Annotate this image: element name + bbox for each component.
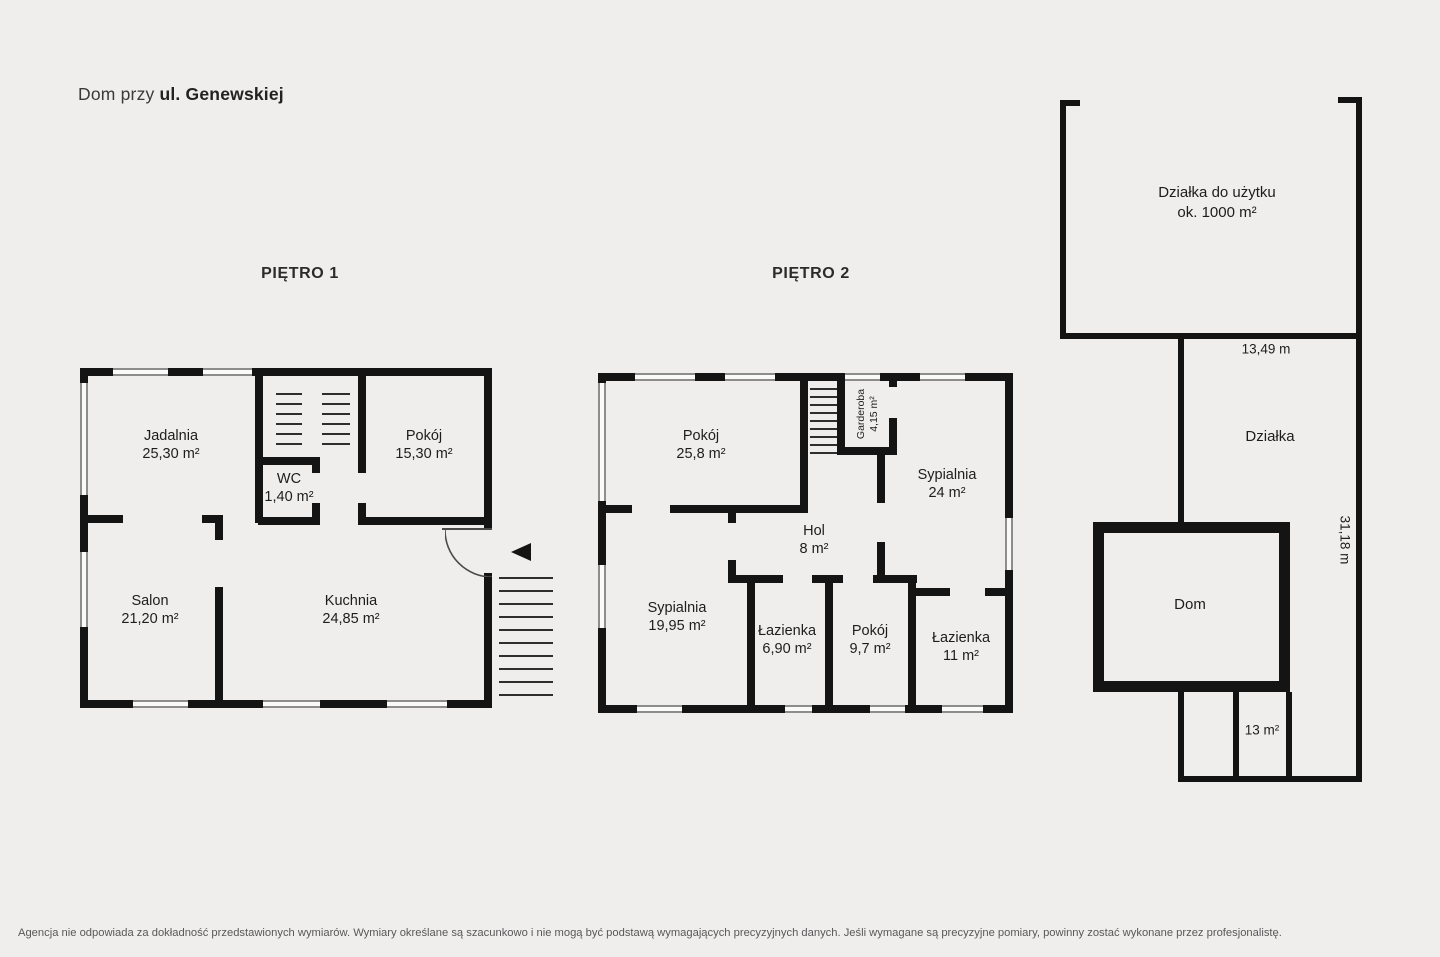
window (203, 368, 252, 376)
plot-boundary-line (1060, 100, 1080, 106)
wall (728, 505, 736, 523)
stairs-step-line (322, 413, 350, 415)
wall (812, 575, 843, 583)
window (80, 552, 88, 627)
plot-boundary-line (1178, 686, 1184, 778)
stairs-step-line (810, 420, 837, 422)
title-prefix: Dom przy (78, 84, 154, 104)
wall (889, 381, 897, 387)
outbuilding-wall (1233, 692, 1239, 778)
plot-boundary-line (1060, 100, 1066, 338)
wall (202, 515, 223, 523)
window (598, 565, 606, 628)
room-area: 19,95 m² (648, 618, 707, 636)
room-area: 24 m² (918, 485, 977, 503)
room-area: 25,8 m² (676, 446, 725, 464)
floor-plan-page: Dom przyul. Genewskiej PIĘTRO 1 PIĘTRO 2 (0, 0, 1440, 957)
outbuilding-wall (1286, 692, 1292, 778)
wall (358, 376, 366, 473)
stairs-step-line (499, 616, 553, 618)
room-name: Pokój (395, 428, 452, 446)
window (920, 373, 965, 381)
stairs-step-line (499, 629, 553, 631)
room-label-lazienka-6: Łazienka 6,90 m² (758, 623, 816, 659)
room-label-lazienka-11: Łazienka 11 m² (932, 630, 990, 666)
wall (985, 588, 1005, 596)
room-area: 25,30 m² (142, 446, 199, 464)
plot-usable-area: ok. 1000 m² (1158, 203, 1276, 223)
room-area: 21,20 m² (121, 611, 178, 629)
stairs-step-line (810, 396, 837, 398)
stairs-step-line (499, 668, 553, 670)
room-label-pokoj-1: Pokój 15,30 m² (395, 428, 452, 464)
floor-2-plan: Pokój 25,8 m² Garderoba 4,15 m² Sypialni… (598, 373, 1013, 713)
room-label-wc: WC 1,40 m² (264, 471, 313, 507)
wall (255, 376, 263, 523)
disclaimer-text: Agencja nie odpowiada za dokładność prze… (18, 927, 1282, 939)
wall (837, 381, 845, 455)
stairs-step-line (810, 428, 837, 430)
room-name: Pokój (849, 623, 890, 641)
floor-2-label: PIĘTRO 2 (772, 265, 850, 283)
wall (908, 577, 916, 705)
wall (916, 588, 950, 596)
plot-boundary-line (1338, 97, 1362, 103)
stairs-step-line (499, 642, 553, 644)
room-name: Sypialnia (918, 467, 977, 485)
wall (877, 455, 885, 503)
plot-boundary-line (1356, 97, 1362, 782)
stairs-step-line (276, 443, 302, 445)
room-name: Łazienka (932, 630, 990, 648)
wall (606, 505, 632, 513)
stairs-step-line (276, 393, 302, 395)
room-label-pokoj-25: Pokój 25,8 m² (676, 428, 725, 464)
wall (670, 505, 808, 513)
stairs-step-line (499, 603, 553, 605)
wall (258, 517, 320, 525)
window (598, 383, 606, 501)
room-name: Jadalnia (142, 428, 199, 446)
plot-usable-title: Działka do użytku (1158, 183, 1276, 203)
room-label-salon: Salon 21,20 m² (121, 593, 178, 629)
stairs-step-line (499, 694, 553, 696)
floor-1-plan: Jadalnia 25,30 m² Pokój 15,30 m² WC 1,40… (80, 368, 492, 708)
house-label: Dom (1174, 595, 1206, 615)
stairs-step-line (810, 404, 837, 406)
window (637, 705, 682, 713)
stairs-step-line (499, 577, 553, 579)
stairs-step-line (810, 412, 837, 414)
wall (358, 517, 492, 525)
room-area: 24,85 m² (322, 611, 379, 629)
wall (88, 515, 123, 523)
wall (358, 503, 366, 517)
stairs-step-line (276, 413, 302, 415)
window (870, 705, 905, 713)
title-street: ul. Genewskiej (159, 84, 283, 104)
room-area: 8 m² (800, 541, 829, 559)
room-area: 1,40 m² (264, 489, 313, 507)
page-title: Dom przyul. Genewskiej (78, 84, 284, 105)
window (1005, 518, 1013, 570)
window (387, 700, 447, 708)
window (725, 373, 775, 381)
plot-width-dimension: 13,49 m (1242, 342, 1291, 357)
parcel-label: Działka (1245, 427, 1294, 447)
room-label-garderoba: Garderoba 4,15 m² (855, 389, 881, 439)
room-name: Sypialnia (648, 600, 707, 618)
stairs-step-line (810, 452, 837, 454)
plot-boundary-line (1178, 776, 1362, 782)
window (263, 700, 320, 708)
plot-depth-dimension: 31,18 m (1338, 516, 1353, 565)
stairs-step-line (810, 444, 837, 446)
stairs-step-line (322, 443, 350, 445)
room-label-jadalnia: Jadalnia 25,30 m² (142, 428, 199, 464)
window (80, 383, 88, 495)
room-area: 4,15 m² (868, 389, 881, 439)
outbuilding-area-label: 13 m² (1245, 723, 1280, 738)
room-name: Pokój (676, 428, 725, 446)
stairs-step-line (276, 403, 302, 405)
floor-1-label: PIĘTRO 1 (261, 265, 339, 283)
window (785, 705, 812, 713)
room-label-hol: Hol 8 m² (800, 523, 829, 559)
stairs-step-line (276, 423, 302, 425)
wall (800, 381, 808, 513)
room-label-sypialnia-24: Sypialnia 24 m² (918, 467, 977, 503)
wall (728, 575, 783, 583)
stairs-step-line (499, 590, 553, 592)
wall (258, 457, 320, 465)
window (845, 373, 880, 381)
room-name: Garderoba (855, 389, 868, 439)
room-name: Hol (800, 523, 829, 541)
wall (825, 583, 833, 705)
stairs-step-line (322, 393, 350, 395)
entrance-arrow-icon (511, 543, 531, 561)
room-area: 15,30 m² (395, 446, 452, 464)
window (113, 368, 168, 376)
window (133, 700, 188, 708)
wall (215, 523, 223, 540)
wall (484, 368, 492, 530)
stairs-step-line (810, 388, 837, 390)
wall (747, 583, 755, 705)
stairs-step-line (499, 681, 553, 683)
stairs-step-line (322, 423, 350, 425)
plot-boundary-line (1060, 333, 1362, 339)
window (635, 373, 695, 381)
room-name: Salon (121, 593, 178, 611)
plot-boundary-line (1178, 339, 1184, 527)
stairs-step-line (322, 403, 350, 405)
wall (215, 587, 223, 700)
plot-usable-label: Działka do użytku ok. 1000 m² (1158, 183, 1276, 224)
wall (837, 447, 897, 455)
stairs-step-line (276, 433, 302, 435)
wall (889, 418, 897, 455)
stairs-step-line (499, 655, 553, 657)
door-arc (445, 530, 492, 577)
stairs-step-line (810, 436, 837, 438)
room-area: 6,90 m² (758, 641, 816, 659)
stairs-step-line (322, 433, 350, 435)
wall (484, 573, 492, 708)
room-area: 11 m² (932, 648, 990, 666)
room-name: Kuchnia (322, 593, 379, 611)
room-area: 9,7 m² (849, 641, 890, 659)
room-name: Łazienka (758, 623, 816, 641)
room-label-kuchnia: Kuchnia 24,85 m² (322, 593, 379, 629)
room-label-sypialnia-19: Sypialnia 19,95 m² (648, 600, 707, 636)
window (942, 705, 983, 713)
room-name: WC (264, 471, 313, 489)
room-label-pokoj-9: Pokój 9,7 m² (849, 623, 890, 659)
